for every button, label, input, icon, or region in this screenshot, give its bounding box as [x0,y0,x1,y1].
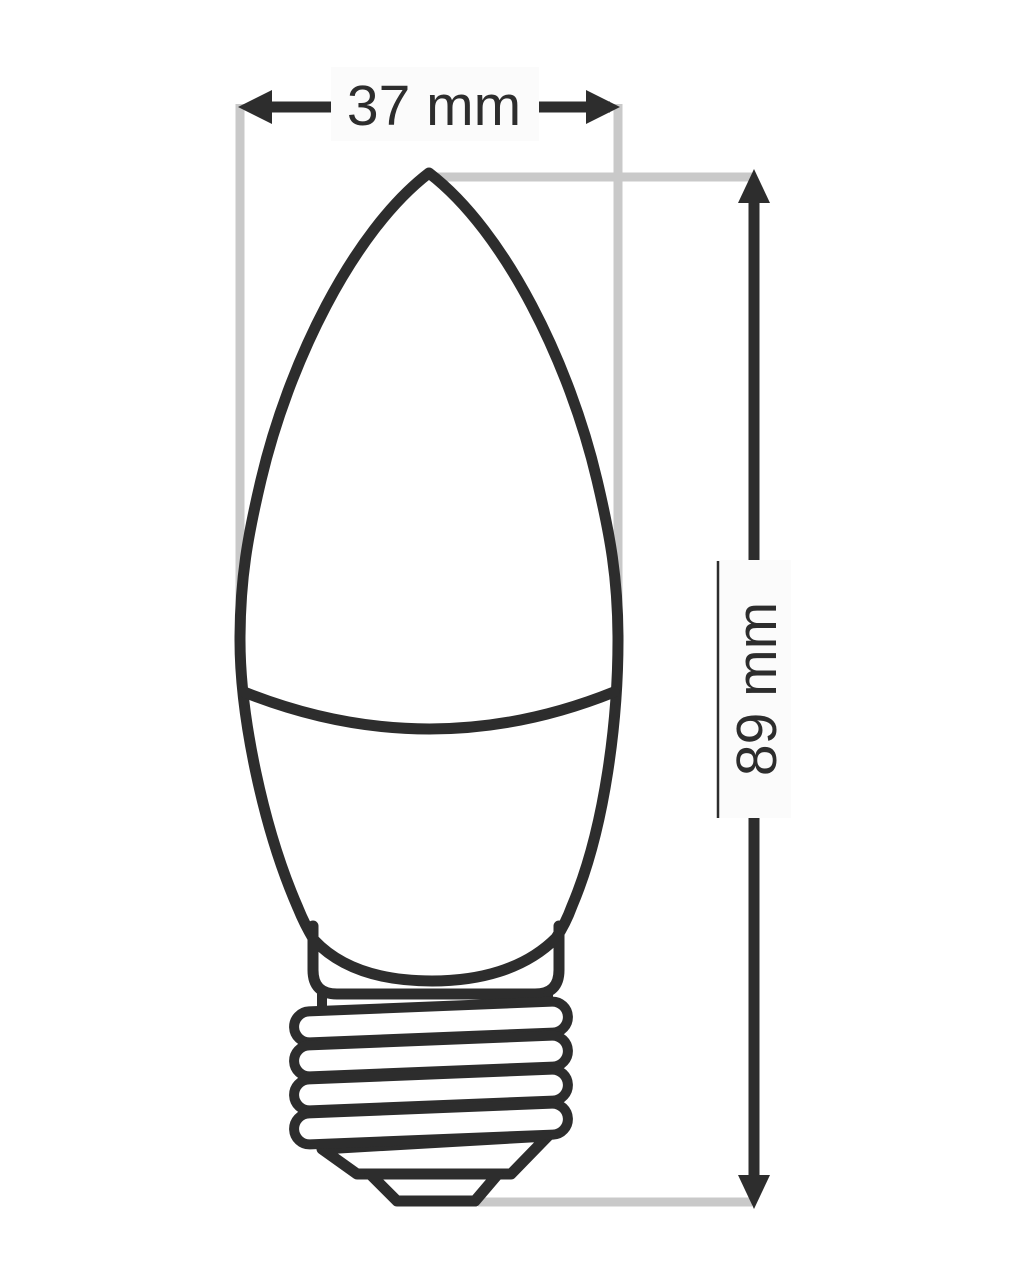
width-dimension-label: 37 mm [347,74,521,138]
diagram-canvas: 37 mm 89 mm [0,0,1025,1280]
height-dimension: 89 mm [717,169,791,1209]
screw-base [293,994,568,1201]
screw-thread [293,1103,568,1145]
bulb-dimension-diagram: 37 mm 89 mm [0,0,1025,1280]
bulb-body [240,173,618,981]
bulb-outline-group [240,173,618,1201]
width-dimension: 37 mm [238,67,620,141]
base-contact-tip [370,1174,498,1201]
height-dimension-label: 89 mm [725,602,789,776]
